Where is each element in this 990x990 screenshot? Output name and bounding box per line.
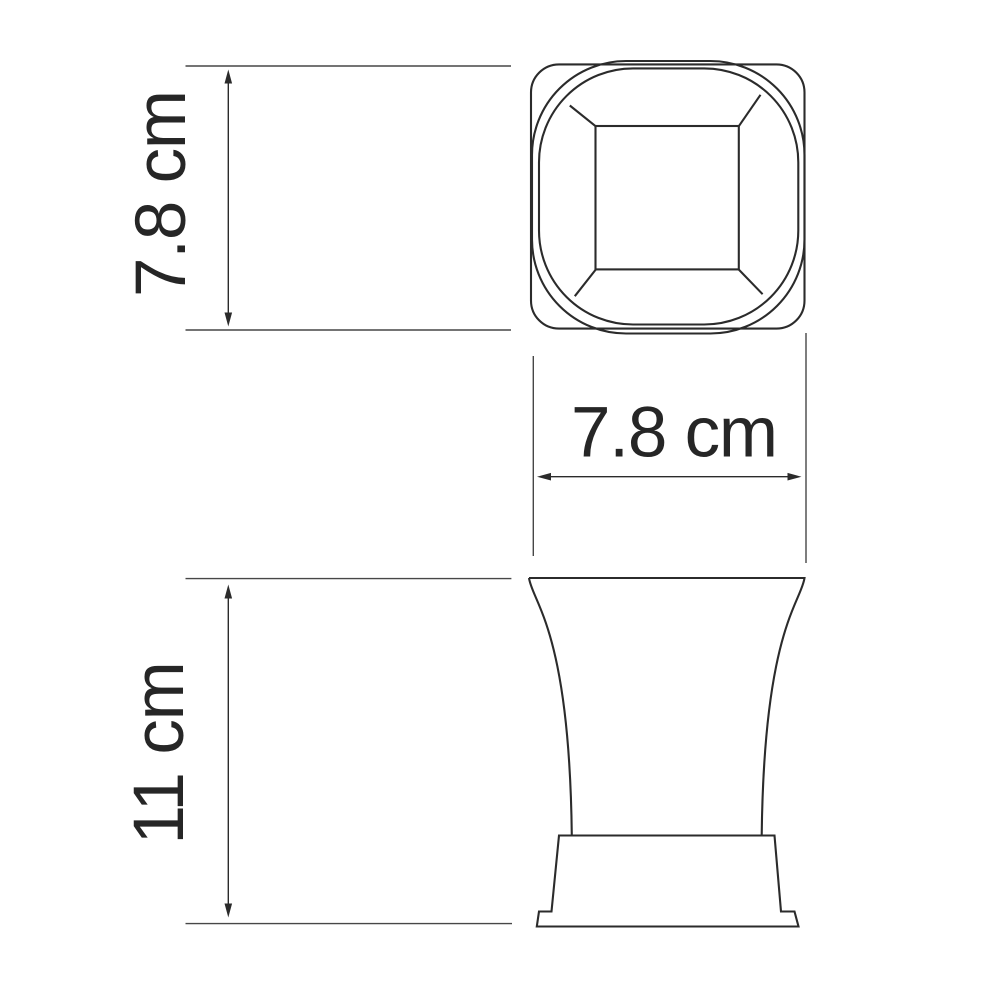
svg-text:7.8 cm: 7.8 cm bbox=[122, 91, 201, 297]
svg-text:7.8 cm: 7.8 cm bbox=[571, 394, 777, 473]
svg-text:11 cm: 11 cm bbox=[120, 662, 199, 844]
